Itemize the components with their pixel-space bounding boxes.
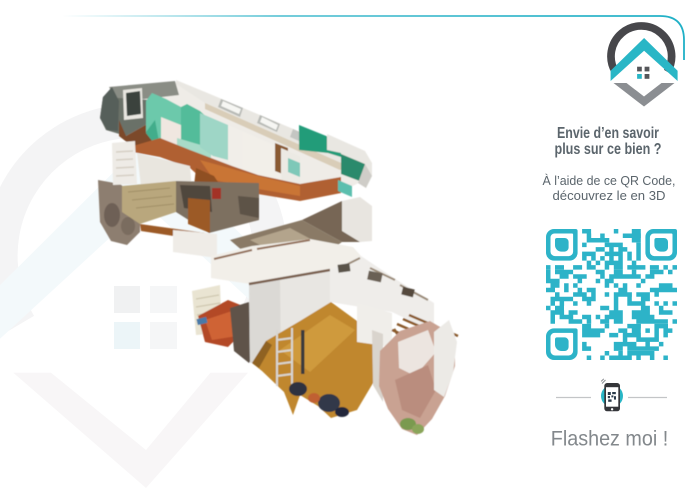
svg-text:plus sur ce bien ?: plus sur ce bien ? (555, 141, 662, 158)
svg-text:découvrez le en 3D: découvrez le en 3D (553, 188, 666, 203)
svg-text:Flashez moi !: Flashez moi ! (551, 428, 669, 451)
svg-text:Envie d’en savoir: Envie d’en savoir (557, 125, 659, 142)
svg-text:À l’aide de ce QR Code,: À l’aide de ce QR Code, (543, 173, 676, 188)
